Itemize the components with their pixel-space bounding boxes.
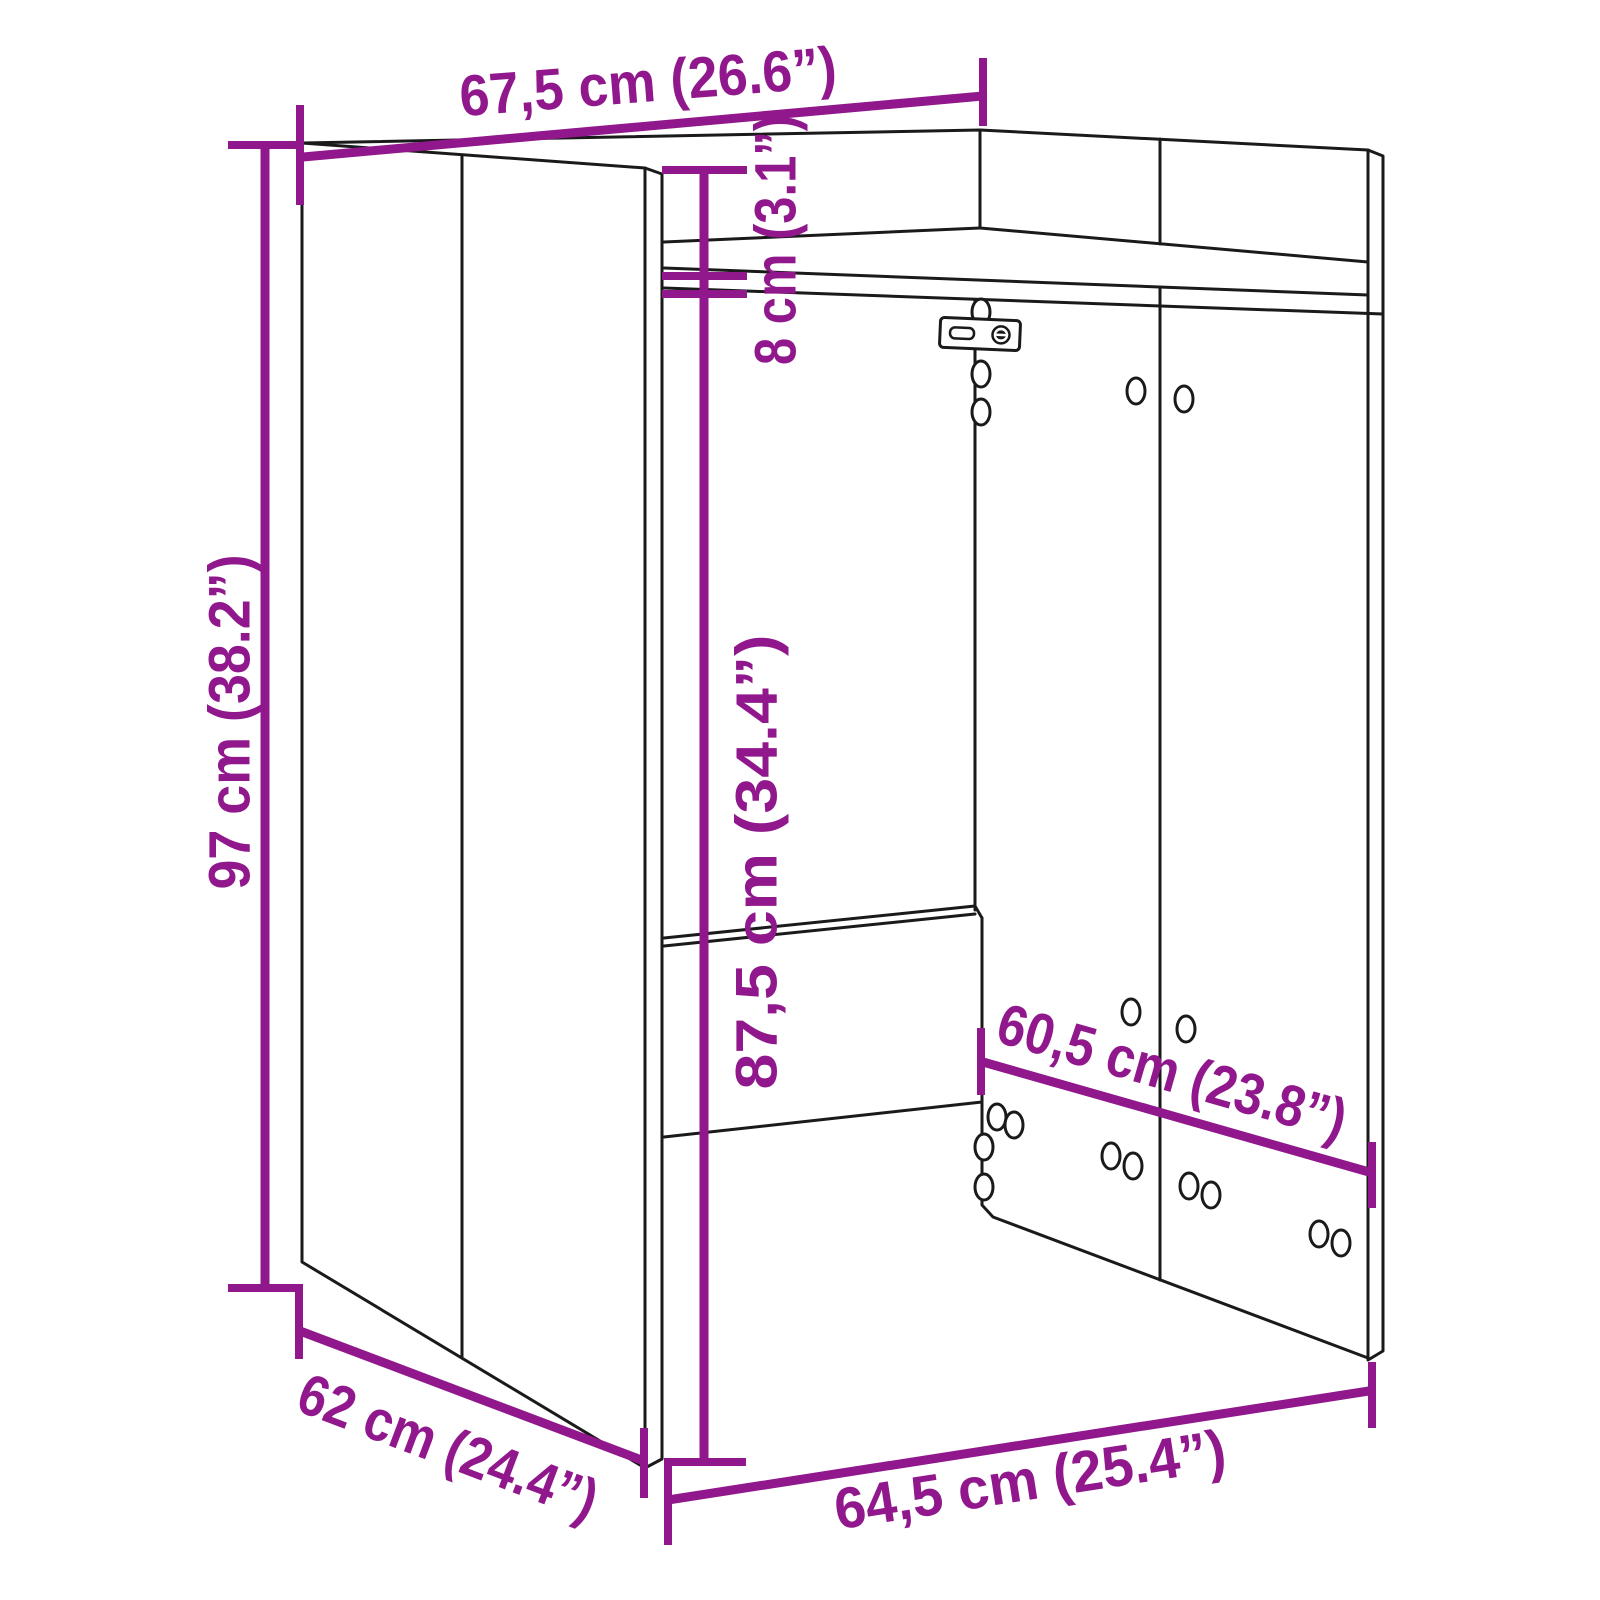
drill-hole (1122, 999, 1140, 1025)
dimension-overall-height: 97 cm (38.2”) (198, 145, 304, 1288)
drill-hole (1175, 386, 1193, 412)
dimension-label-inner-width: 60,5 cm (23.8”) (990, 991, 1354, 1153)
drill-hole (1127, 378, 1145, 404)
drill-hole (1005, 1112, 1023, 1138)
diagram-canvas: 67,5 cm (26.6”) 97 cm (38.2”) 8 cm (3.1”… (0, 0, 1600, 1600)
mounting-bracket (939, 317, 1020, 350)
drill-hole (1102, 1143, 1120, 1169)
dimension-label-bottom-width: 64,5 cm (25.4”) (830, 1418, 1230, 1543)
drill-hole (975, 1134, 993, 1160)
bracket-slot (950, 327, 974, 339)
mid-support-rail (664, 906, 982, 946)
drill-hole (972, 399, 990, 425)
drill-hole (1332, 1230, 1350, 1256)
drill-hole (1202, 1182, 1220, 1208)
drill-hole (972, 361, 990, 387)
dimension-label-inner-height: 87,5 cm (34.4”) (725, 635, 790, 1090)
dimension-inner-height: 87,5 cm (34.4”) (664, 296, 790, 1462)
drill-hole (988, 1104, 1006, 1130)
dimension-bottom-width: 64,5 cm (25.4”) (668, 1362, 1372, 1545)
dimension-depth: 62 cm (24.4”) (289, 1289, 644, 1533)
bracket-screw-slot (994, 335, 1008, 336)
drill-hole (1124, 1153, 1142, 1179)
dimension-label-top-clearance: 8 cm (3.1”) (744, 115, 809, 365)
left-side-panel (302, 143, 662, 1468)
drill-hole (1180, 1173, 1198, 1199)
drill-hole (1177, 1016, 1195, 1042)
dimension-label-overall-height: 97 cm (38.2”) (198, 555, 263, 890)
dimension-diagram: 67,5 cm (26.6”) 97 cm (38.2”) 8 cm (3.1”… (0, 0, 1600, 1600)
drill-hole (1310, 1221, 1328, 1247)
drill-hole (975, 1174, 993, 1200)
cabinet-drawing (302, 130, 1383, 1468)
dimension-top-width: 67,5 cm (26.6”) (300, 35, 983, 205)
dimension-annotations: 67,5 cm (26.6”) 97 cm (38.2”) 8 cm (3.1”… (198, 35, 1373, 1545)
